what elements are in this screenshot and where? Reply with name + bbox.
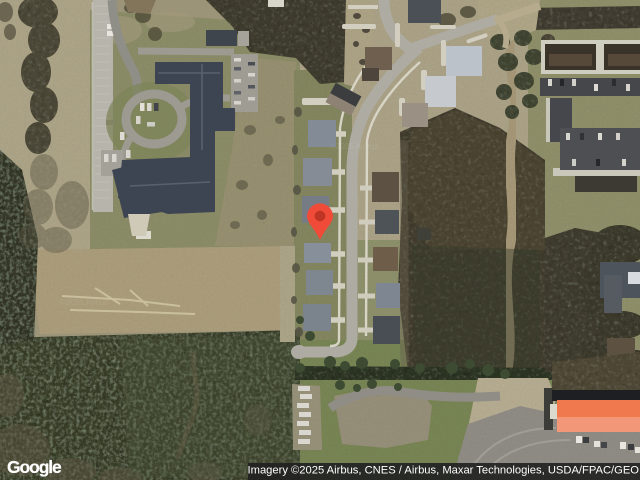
svg-text:Google: Google (7, 457, 62, 477)
svg-text:Imagery ©2025 Airbus, CNES / A: Imagery ©2025 Airbus, CNES / Airbus, Max… (248, 465, 640, 477)
svg-text:©2025 Airbus: ©2025 Airbus (60, 298, 108, 307)
svg-text:©2025 Airbus: ©2025 Airbus (330, 142, 378, 151)
